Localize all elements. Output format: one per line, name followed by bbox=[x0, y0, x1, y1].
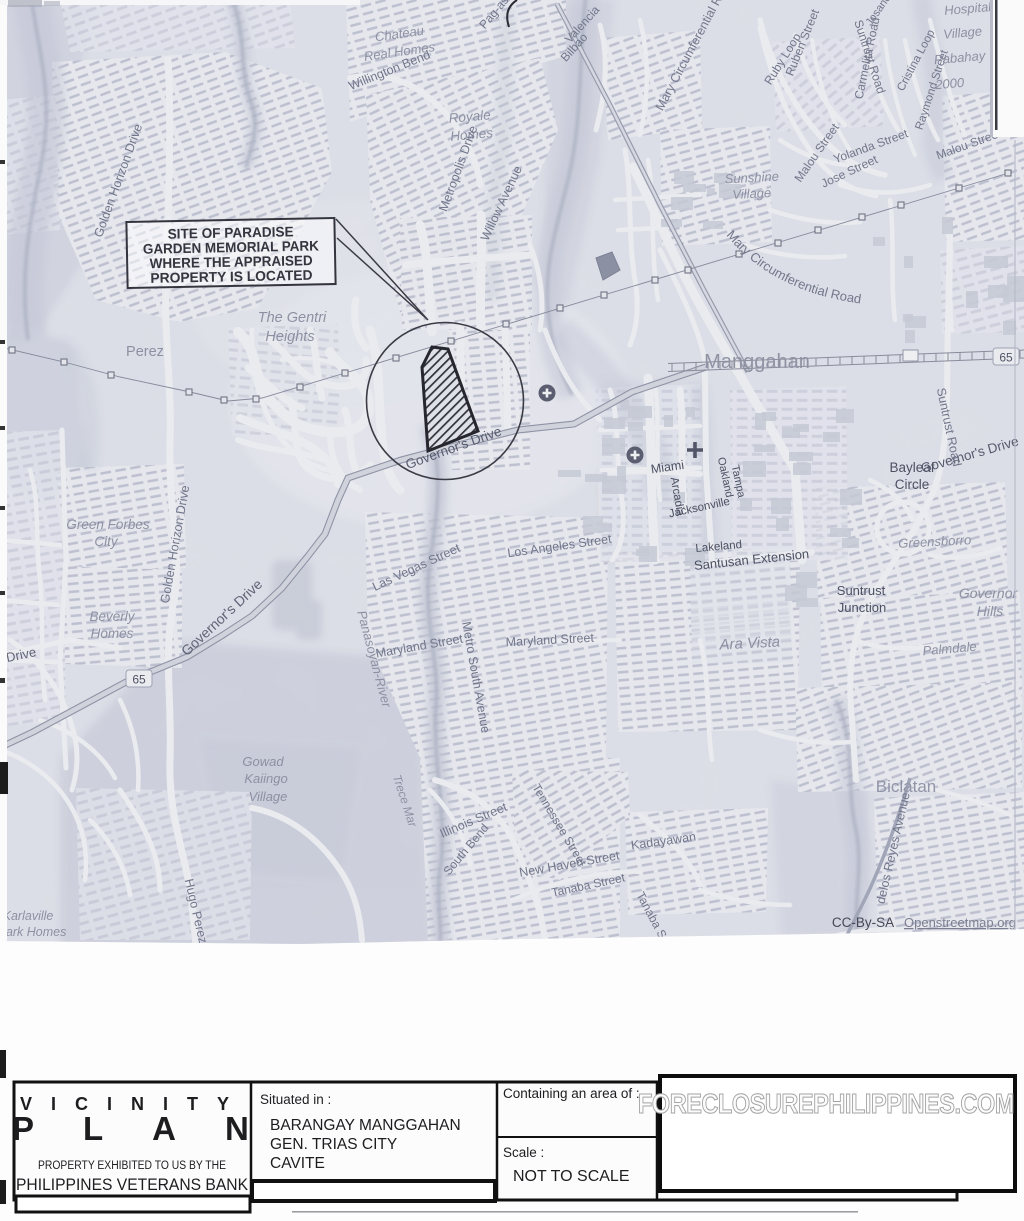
svg-text:PROPERTY EXHIBITED TO US BY TH: PROPERTY EXHIBITED TO US BY THE bbox=[38, 1160, 226, 1172]
svg-text:FORECLOSUREPHILIPPINES.COM: FORECLOSUREPHILIPPINES.COM bbox=[638, 1088, 1014, 1119]
svg-text:PROPERTY IS LOCATED: PROPERTY IS LOCATED bbox=[150, 267, 312, 286]
svg-text:Situated in :: Situated in : bbox=[260, 1092, 331, 1107]
svg-text:Scale :: Scale : bbox=[503, 1145, 544, 1160]
svg-text:PLAN: PLAN bbox=[12, 1110, 298, 1147]
svg-text:Containing an area of :: Containing an area of : bbox=[503, 1086, 640, 1101]
svg-text:PHILIPPINES VETERANS BANK: PHILIPPINES VETERANS BANK bbox=[16, 1176, 248, 1194]
svg-text:GEN. TRIAS CITY: GEN. TRIAS CITY bbox=[270, 1136, 397, 1153]
svg-text:NOT TO SCALE: NOT TO SCALE bbox=[513, 1168, 629, 1185]
svg-text:CAVITE: CAVITE bbox=[270, 1155, 325, 1172]
svg-text:BARANGAY MANGGAHAN: BARANGAY MANGGAHAN bbox=[270, 1117, 461, 1134]
